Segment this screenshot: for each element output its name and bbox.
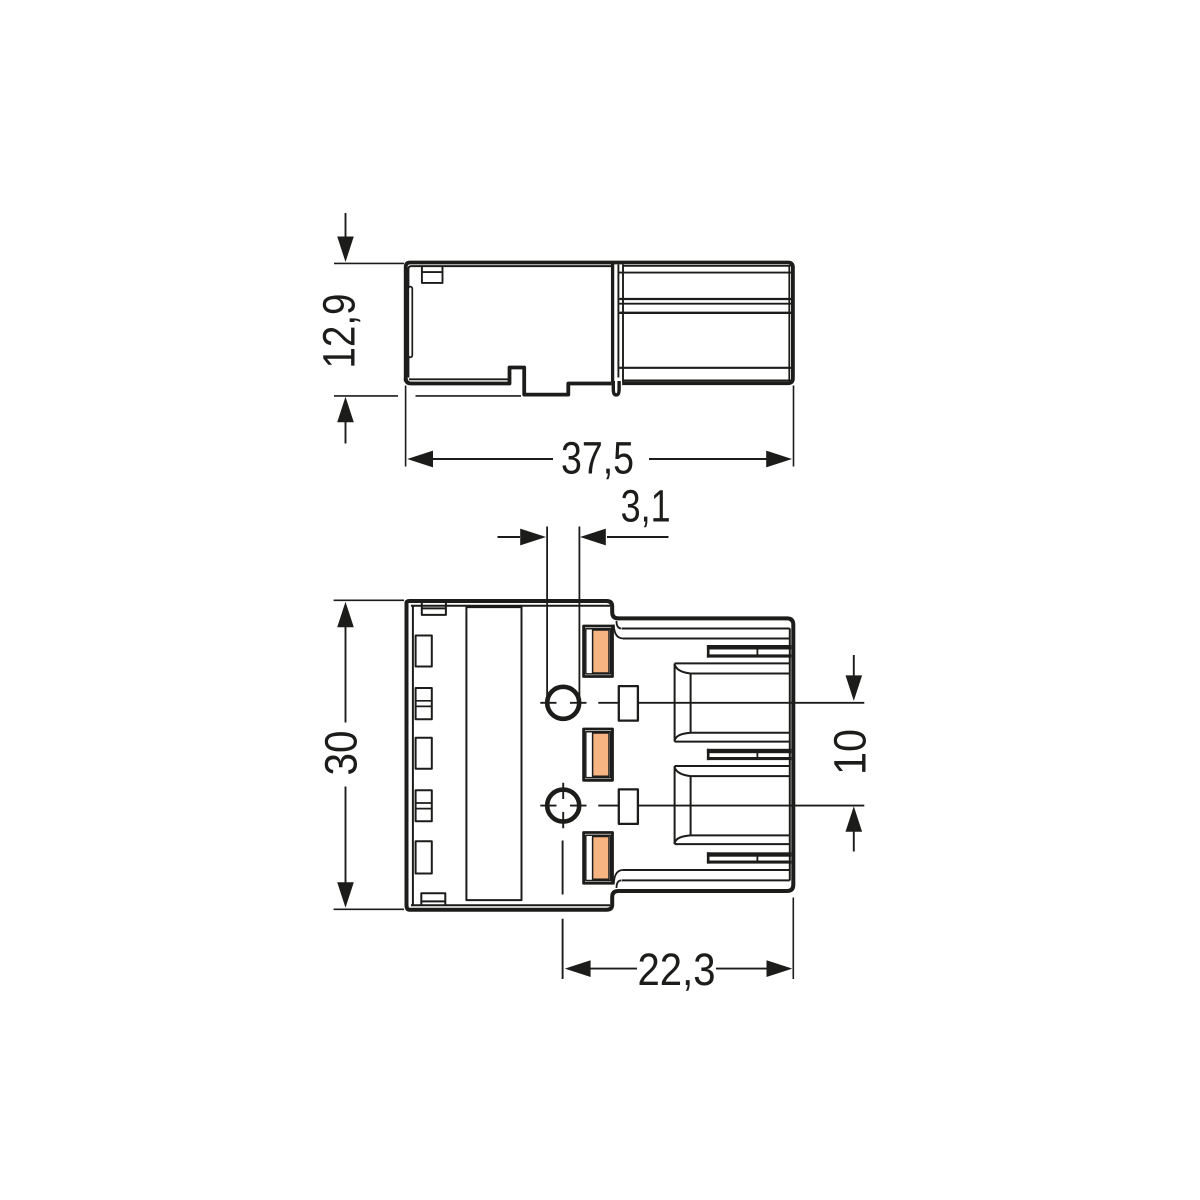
svg-text:10: 10 <box>825 729 876 775</box>
svg-text:3,1: 3,1 <box>621 481 671 532</box>
svg-text:30: 30 <box>316 731 367 776</box>
svg-text:37,5: 37,5 <box>561 433 634 484</box>
svg-text:22,3: 22,3 <box>638 944 716 995</box>
svg-text:12,9: 12,9 <box>314 294 365 369</box>
